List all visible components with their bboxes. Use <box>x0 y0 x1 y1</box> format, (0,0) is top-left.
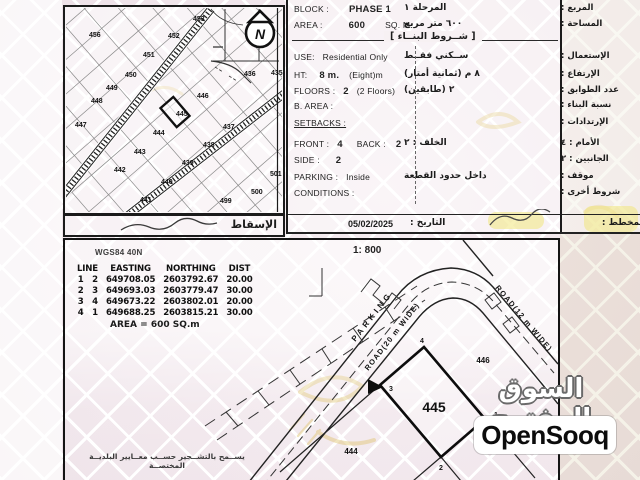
coord-cell: 2603815.21 <box>159 308 222 319</box>
dashed-column-divider <box>415 46 416 204</box>
plan-date: 05/02/2025 <box>348 219 393 229</box>
coord-cell: 3 <box>73 297 87 308</box>
english-fields: HT:8 m.(Eight)m <box>294 70 383 81</box>
arabic-value: ٨ م (ثمانية أمتار) <box>404 69 556 79</box>
coord-cell: 649708.05 <box>102 275 159 286</box>
field-text: 2 <box>396 139 401 150</box>
corner-point-4: 4 <box>420 338 424 345</box>
coord-cell: 2603792.67 <box>159 275 222 286</box>
coord-cell: 4 <box>87 297 101 308</box>
field-text: FRONT : <box>294 139 329 149</box>
area-note: AREA = 600 SQ.m <box>110 320 200 330</box>
projection-label: الإسقاط <box>231 218 277 231</box>
col-northing: NORTHING <box>159 264 222 275</box>
plot-number-440: 440 <box>161 179 173 186</box>
corner-point-2: 2 <box>439 465 443 472</box>
svg-text:N: N <box>255 26 266 42</box>
english-fields: SETBACKS : <box>294 118 346 128</box>
plot-number-501: 501 <box>270 171 282 178</box>
arabic-label: الإرتفاع : <box>561 69 639 79</box>
arabic-label: المربع : <box>561 3 639 13</box>
opensooq-logo: OpenSooq <box>474 416 616 454</box>
plot-number-450: 450 <box>125 72 137 79</box>
info-row-6: SETBACKS :الإرتدادات : <box>288 118 640 132</box>
plot-number-436: 436 <box>244 71 256 78</box>
road-label: ROAD(12 m WIDE) <box>494 283 555 353</box>
coord-cell: 2 <box>87 275 101 286</box>
arabic-value: ســكني فقــط <box>404 51 556 61</box>
plot-number-442: 442 <box>114 167 126 174</box>
plot-map-drawing: N 45645345245145044944844744644544444344… <box>65 7 283 213</box>
field-text: 600 <box>349 20 365 31</box>
plot-number-446: 446 <box>197 93 209 100</box>
neighborhood-plot-map: N 45645345245145044944844744644544444344… <box>63 5 285 215</box>
arabic-label: الأمام : ٤ <box>561 138 639 148</box>
plot-number-438: 438 <box>203 142 215 149</box>
plot-label-446: 446 <box>476 356 490 365</box>
field-text: Residential Only <box>323 52 388 62</box>
coord-cell: 649693.03 <box>102 286 159 297</box>
arabic-label: الإرتدادات : <box>561 117 639 127</box>
english-fields: FRONT :4BACK :2 <box>294 139 401 150</box>
coord-cell: 30.00 <box>222 286 256 297</box>
field-text: HT: <box>294 70 307 80</box>
corner-arrow-marker <box>368 379 383 394</box>
plot-number-444: 444 <box>153 130 165 137</box>
col-dist: DIST <box>222 264 256 275</box>
info-row-9: PARKING :Insideداخل حدود القطعةموقف : <box>288 172 640 186</box>
arabic-label: المساحة : <box>561 19 639 29</box>
english-fields: FLOORS :2(2 Floors) <box>294 86 395 97</box>
arabic-label: الإستعمال : <box>561 51 639 61</box>
field-text: BACK : <box>357 139 386 149</box>
building-conditions-heading: [ شــروط البنــاء ] <box>384 31 482 42</box>
arabic-label: شروط أخرى : <box>561 187 639 197</box>
panel-right-border <box>560 0 562 234</box>
coord-cell: 4 <box>73 308 87 319</box>
info-row-4: FLOORS :2(2 Floors)٢ (طابقين)عدد الطوابق… <box>288 86 640 100</box>
arabic-value: ٦٠٠ متر مربع <box>404 19 556 29</box>
north-compass-icon: N <box>246 11 274 47</box>
arabic-label: نسبة البناء : <box>561 100 639 110</box>
field-text: PHASE 1 <box>349 4 391 15</box>
english-fields: CONDITIONS : <box>294 188 355 198</box>
date-strip: 05/02/2025 التاريخ : المخطط : <box>288 214 640 234</box>
col-easting: EASTING <box>102 264 159 275</box>
field-text: PARKING : <box>294 172 338 182</box>
plot-number-445: 445 <box>176 111 188 118</box>
plot-number-456: 456 <box>89 32 101 39</box>
field-text: B. AREA : <box>294 101 333 111</box>
field-text: (Eight)m <box>349 70 383 80</box>
plot-number-435: 435 <box>271 70 283 77</box>
planner-label: المخطط : <box>602 218 640 228</box>
coord-cell: 1 <box>87 308 101 319</box>
plot-number-441: 441 <box>140 197 152 204</box>
info-row-7: FRONT :4BACK :2الخلف : ٢الأمام : ٤ <box>288 139 640 153</box>
coord-cell: 3 <box>87 286 101 297</box>
scanned-land-survey-document: N 45645345245145044944844744644544444344… <box>0 0 640 480</box>
plot-number-451: 451 <box>143 52 155 59</box>
english-fields: SIDE :2 <box>294 155 341 166</box>
info-row-10: CONDITIONS :شروط أخرى : <box>288 188 640 202</box>
field-text: CONDITIONS : <box>294 188 355 198</box>
plot-number-453: 453 <box>193 16 205 23</box>
plot-number-448: 448 <box>91 98 103 105</box>
info-row-3: HT:8 m.(Eight)m٨ م (ثمانية أمتار)الإرتفا… <box>288 70 640 84</box>
coord-cell: 2 <box>73 286 87 297</box>
plot-number-449: 449 <box>106 85 118 92</box>
field-text: AREA : <box>294 20 323 30</box>
plot-label-445: 445 <box>422 399 446 415</box>
arabic-label: عدد الطوابق : <box>561 85 639 95</box>
coord-cell: 2603802.01 <box>159 297 222 308</box>
coordinates-table: LINE EASTING NORTHING DIST 12649708.0526… <box>73 264 257 319</box>
plot-number-500: 500 <box>251 189 263 196</box>
tree-planting-note: يســمح بالتشــجير حســب معــايير البلديـ… <box>77 452 257 470</box>
coord-cell: 1 <box>73 275 87 286</box>
coord-cell: 20.00 <box>222 297 256 308</box>
plot-number-452: 452 <box>168 33 180 40</box>
left-margin <box>0 0 62 480</box>
arabic-value: ٢ (طابقين) <box>404 85 556 95</box>
field-text: USE: <box>294 52 315 62</box>
planner-signature <box>486 209 556 231</box>
projection-strip: الإسقاط <box>63 215 285 237</box>
info-row-2: USE:Residential Onlyســكني فقــطالإستعما… <box>288 52 640 66</box>
date-label: التاريخ : <box>410 218 445 228</box>
field-text: Inside <box>346 172 370 182</box>
arabic-label: الجانبين : ٢ <box>561 154 639 164</box>
building-conditions-panel: BLOCK :PHASE 1المرحلة ١المربع :AREA :600… <box>286 0 640 234</box>
english-fields: BLOCK :PHASE 1 <box>294 4 391 15</box>
coord-row: 12649708.052603792.6720.00 <box>73 275 257 286</box>
corner-point-3: 3 <box>389 386 393 393</box>
plot-label-444: 444 <box>344 447 358 456</box>
arabic-label: موقف : <box>561 171 639 181</box>
english-fields: B. AREA : <box>294 101 333 111</box>
arabic-value: المرحلة ١ <box>404 3 556 13</box>
arabic-value: داخل حدود القطعة <box>404 171 556 181</box>
plot-number-443: 443 <box>134 149 146 156</box>
field-text: SIDE : <box>294 155 320 165</box>
road-diagonal-main <box>65 7 214 202</box>
english-fields: PARKING :Inside <box>294 172 370 182</box>
field-text: 8 m. <box>319 70 339 81</box>
arabic-value: الخلف : ٢ <box>404 138 556 148</box>
info-row-8: SIDE :2الجانبين : ٢ <box>288 155 640 169</box>
col-line: LINE <box>73 264 102 275</box>
coord-row: 34649673.222603802.0120.00 <box>73 297 257 308</box>
scale-label: 1: 800 <box>353 245 381 256</box>
plot-number-499: 499 <box>220 198 232 205</box>
field-text: SETBACKS : <box>294 118 346 128</box>
plot-number-437: 437 <box>223 124 235 131</box>
coord-cell: 30.00 <box>222 308 256 319</box>
coord-cell: 649673.22 <box>102 297 159 308</box>
field-text: 2 <box>343 86 348 97</box>
info-row-5: B. AREA :نسبة البناء : <box>288 101 640 115</box>
info-row-0: BLOCK :PHASE 1المرحلة ١المربع : <box>288 4 640 18</box>
english-fields: USE:Residential Only <box>294 52 388 62</box>
coord-row: 41649688.252603815.2130.00 <box>73 308 257 319</box>
coord-cell: 2603779.47 <box>159 286 222 297</box>
surveyor-signature <box>117 217 237 235</box>
field-text: 2 <box>336 155 341 166</box>
plot-number-447: 447 <box>75 122 87 129</box>
field-text: 4 <box>337 139 342 150</box>
coord-cell: 20.00 <box>222 275 256 286</box>
datum-label: WGS84 40N <box>95 248 143 257</box>
english-fields: AREA :600SQ. M. <box>294 20 413 31</box>
field-text: BLOCK : <box>294 4 329 14</box>
coord-cell: 649688.25 <box>102 308 159 319</box>
field-text: (2 Floors) <box>357 86 395 96</box>
field-text: FLOORS : <box>294 86 335 96</box>
plot-number-439: 439 <box>182 160 194 167</box>
coord-row: 23649693.032603779.4730.00 <box>73 286 257 297</box>
